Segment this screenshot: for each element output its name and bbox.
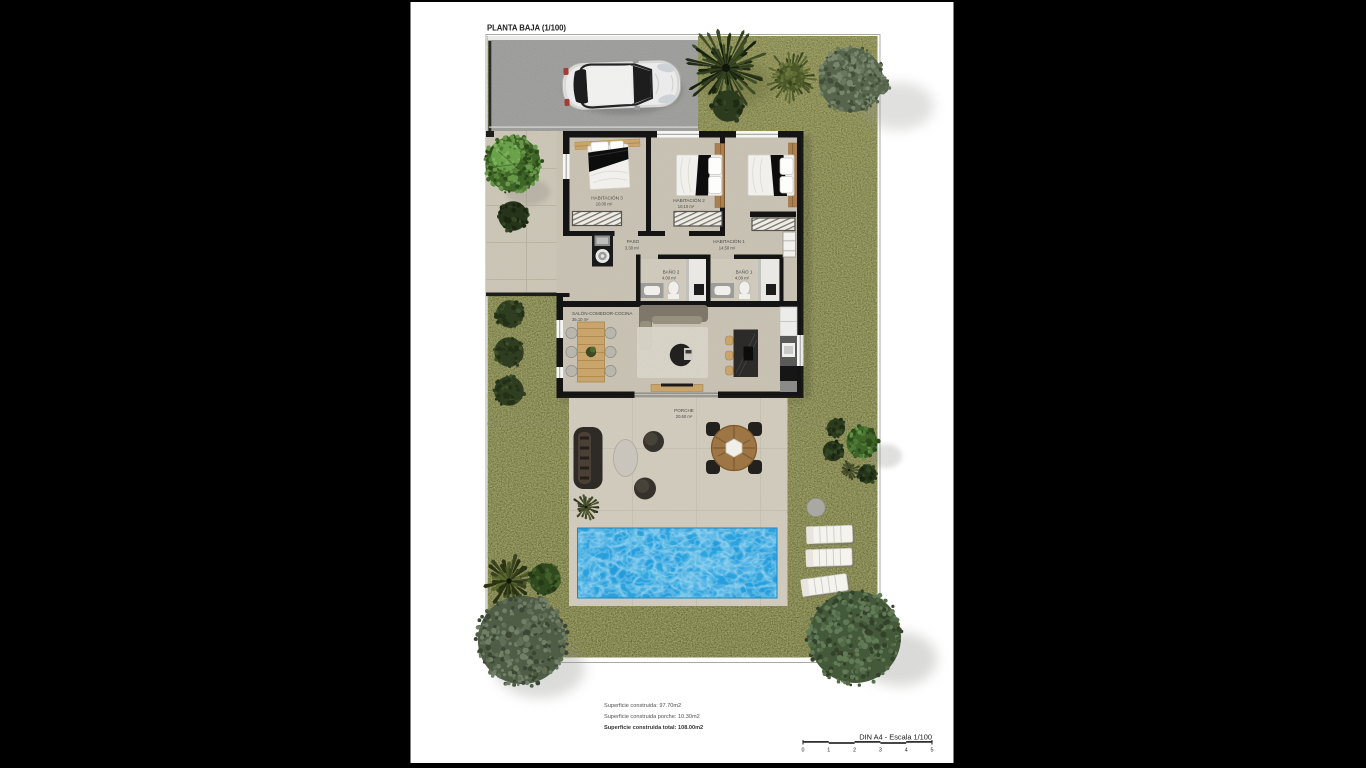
svg-text:1: 1 [827, 748, 830, 754]
svg-text:HABITACIÓN 1: HABITACIÓN 1 [713, 238, 745, 244]
svg-text:4.00 m²: 4.00 m² [735, 276, 750, 281]
svg-text:HABITACIÓN 3: HABITACIÓN 3 [591, 195, 623, 201]
svg-text:2: 2 [853, 748, 856, 754]
svg-text:20.60 m²: 20.60 m² [676, 414, 693, 419]
svg-text:BAÑO 2: BAÑO 2 [663, 269, 680, 275]
svg-text:4.00 m²: 4.00 m² [662, 276, 677, 281]
svg-text:Superficie construida porche:: Superficie construida porche: 10.30m2 [604, 714, 700, 720]
svg-text:SALÓN-COMEDOR-COCINA: SALÓN-COMEDOR-COCINA [572, 310, 633, 316]
svg-text:PLANTA BAJA (1/100): PLANTA BAJA (1/100) [487, 24, 566, 33]
svg-text:3: 3 [879, 748, 882, 754]
svg-text:DIN A4 - Escala 1/100: DIN A4 - Escala 1/100 [859, 733, 932, 742]
svg-text:14.50 m²: 14.50 m² [719, 246, 736, 251]
svg-text:Superficie construida: 97.70m2: Superficie construida: 97.70m2 [604, 703, 681, 709]
svg-text:35.10 m²: 35.10 m² [572, 317, 589, 322]
svg-text:10.00 m²: 10.00 m² [596, 202, 613, 207]
svg-text:PASO: PASO [627, 239, 640, 244]
svg-text:5: 5 [931, 748, 934, 754]
svg-text:PORCHE: PORCHE [674, 408, 694, 413]
svg-text:Superficie construida total: 1: Superficie construida total: 108.00m2 [604, 725, 703, 731]
svg-text:HABITACIÓN 2: HABITACIÓN 2 [673, 197, 705, 203]
svg-text:10.10 m²: 10.10 m² [678, 204, 695, 209]
svg-text:BAÑO 1: BAÑO 1 [736, 269, 753, 275]
svg-text:3.30 m²: 3.30 m² [625, 246, 640, 251]
svg-text:0: 0 [802, 748, 805, 754]
svg-text:4: 4 [905, 748, 908, 754]
